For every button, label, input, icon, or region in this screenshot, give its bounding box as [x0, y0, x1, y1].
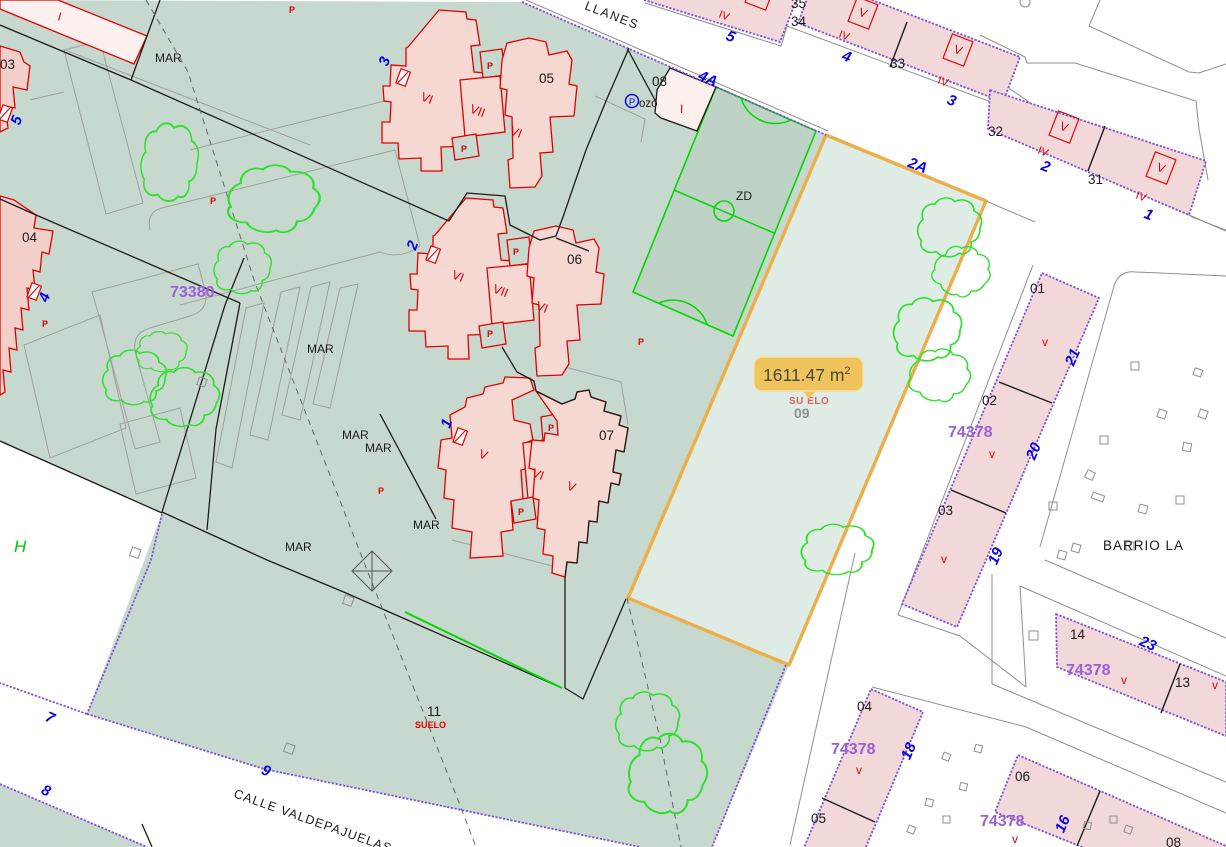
svg-text:P: P: [487, 329, 493, 339]
svg-text:02: 02: [982, 393, 997, 408]
svg-text:P: P: [638, 337, 644, 347]
svg-text:P: P: [629, 97, 635, 108]
svg-text:04: 04: [857, 699, 873, 714]
svg-text:08: 08: [652, 74, 667, 89]
svg-text:11: 11: [427, 704, 441, 719]
svg-text:P: P: [210, 196, 216, 206]
svg-text:MAR: MAR: [307, 342, 334, 356]
svg-text:05: 05: [539, 71, 554, 86]
svg-text:03: 03: [0, 57, 15, 72]
svg-text:09: 09: [794, 405, 810, 421]
svg-text:MAR: MAR: [155, 51, 182, 65]
svg-text:1611.47 m2: 1611.47 m2: [763, 365, 851, 385]
svg-text:04: 04: [22, 230, 38, 245]
svg-text:MAR: MAR: [365, 441, 392, 455]
svg-text:ozo: ozo: [639, 98, 658, 110]
svg-text:I: I: [680, 102, 683, 116]
svg-text:v: v: [989, 447, 995, 461]
svg-text:31: 31: [1088, 172, 1103, 187]
svg-text:06: 06: [1015, 769, 1030, 784]
svg-text:13: 13: [1175, 675, 1190, 690]
svg-text:08: 08: [1166, 835, 1181, 847]
svg-text:14: 14: [1070, 627, 1086, 642]
svg-text:P: P: [513, 247, 519, 257]
svg-text:MAR: MAR: [342, 428, 369, 442]
svg-text:74378: 74378: [1066, 662, 1111, 679]
svg-text:MAR: MAR: [285, 540, 312, 554]
svg-text:P: P: [487, 61, 493, 71]
svg-text:74378: 74378: [980, 813, 1025, 830]
svg-text:v: v: [1012, 832, 1018, 846]
svg-text:74378: 74378: [948, 424, 993, 441]
svg-text:H: H: [14, 537, 27, 556]
svg-text:SUELO: SUELO: [415, 720, 446, 730]
svg-text:BARRIO LA: BARRIO LA: [1103, 538, 1184, 553]
svg-text:v: v: [941, 552, 947, 566]
svg-text:ZD: ZD: [736, 189, 752, 203]
svg-text:v: v: [1121, 673, 1127, 687]
svg-text:v: v: [1212, 678, 1218, 692]
svg-text:P: P: [378, 486, 384, 496]
svg-text:05: 05: [811, 811, 826, 826]
svg-text:73380: 73380: [170, 284, 215, 301]
svg-text:01: 01: [1030, 281, 1045, 296]
svg-text:06: 06: [567, 252, 582, 267]
svg-text:35: 35: [791, 0, 806, 11]
svg-text:P: P: [461, 144, 467, 154]
svg-text:07: 07: [599, 428, 614, 443]
svg-text:P: P: [518, 507, 524, 517]
svg-text:v: v: [1042, 335, 1048, 349]
svg-text:34: 34: [791, 14, 807, 29]
svg-text:32: 32: [988, 124, 1003, 139]
svg-text:MAR: MAR: [413, 518, 440, 532]
svg-text:P: P: [548, 423, 554, 433]
svg-text:P: P: [42, 319, 48, 329]
svg-text:P: P: [289, 5, 295, 15]
svg-text:03: 03: [938, 503, 953, 518]
svg-text:v: v: [856, 763, 862, 777]
svg-text:74378: 74378: [831, 741, 876, 758]
svg-text:33: 33: [890, 56, 905, 71]
